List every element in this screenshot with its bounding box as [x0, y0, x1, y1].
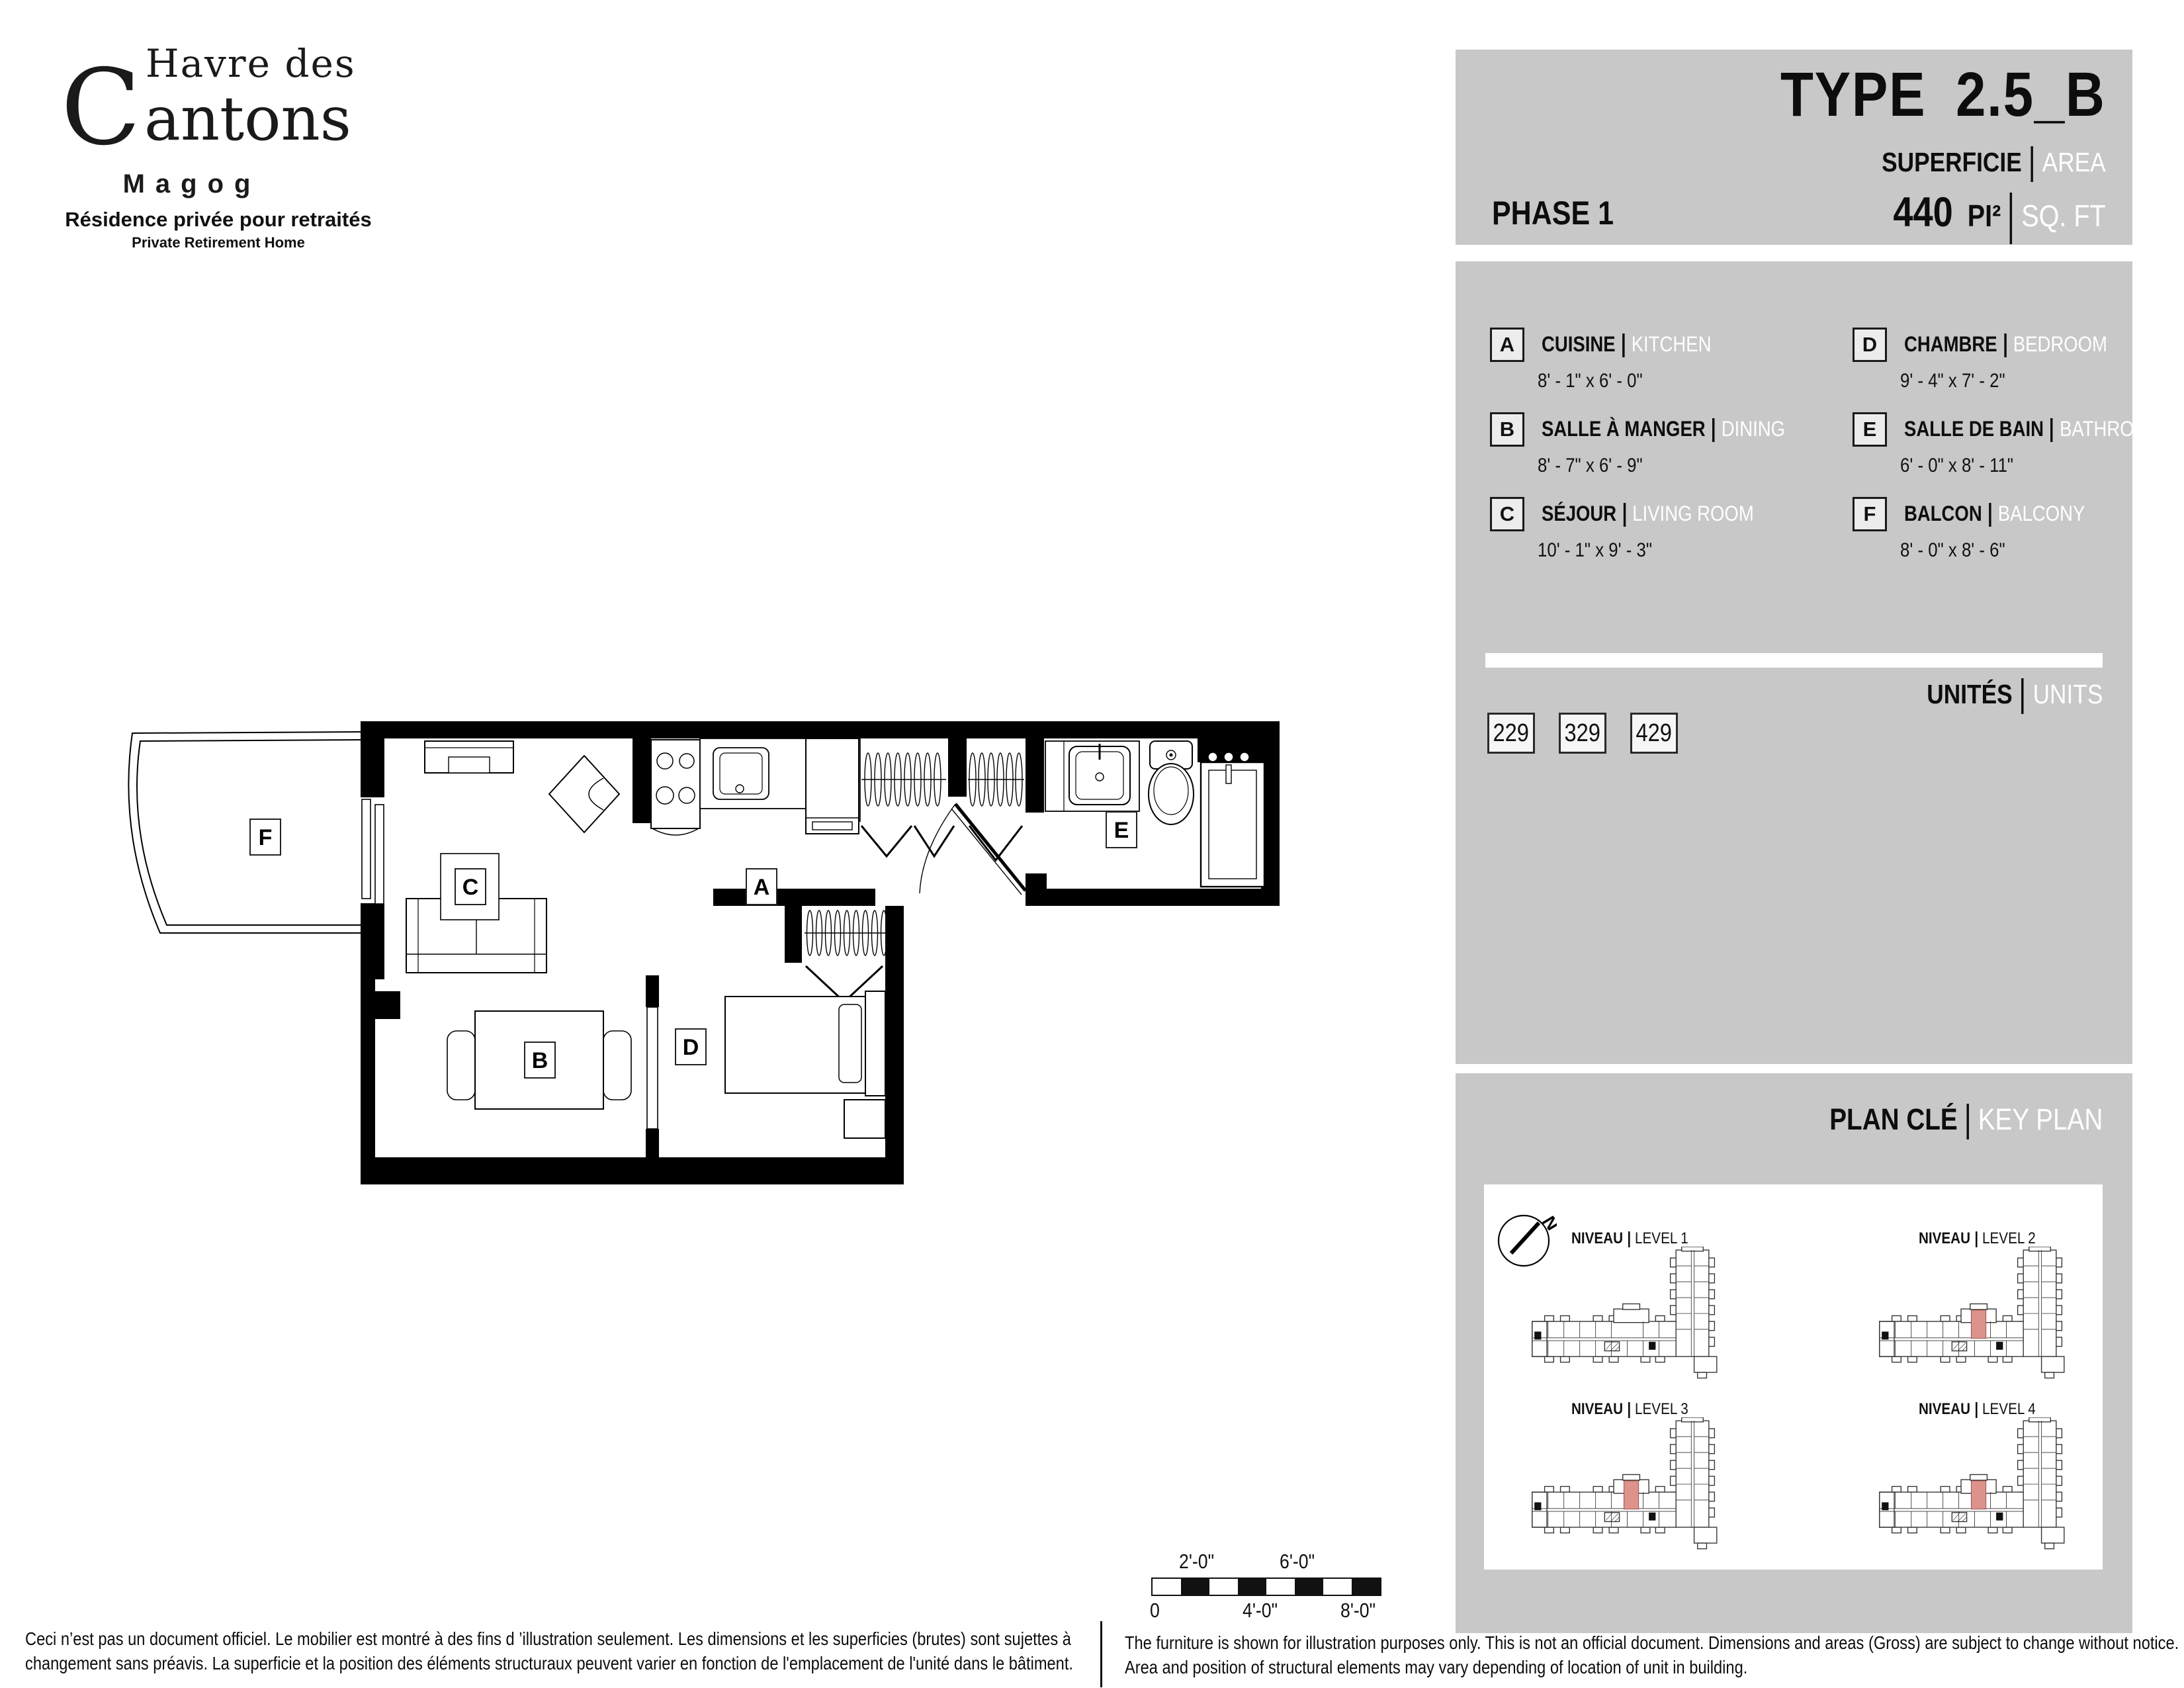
- balcony-sliding-door: [362, 799, 384, 904]
- legend-code-e: E: [1853, 412, 1887, 447]
- room-label-b: B: [532, 1048, 548, 1073]
- level-number: LEVEL 4: [1982, 1400, 2036, 1418]
- lounge-chair: [549, 756, 619, 832]
- logo-line-top: Havre des: [146, 41, 356, 86]
- scale-label-0: 0: [1150, 1599, 1160, 1622]
- disclaimer-english: The furniture is shown for illustration …: [1125, 1630, 2130, 1679]
- legend-name-en: KITCHEN: [1632, 332, 1712, 356]
- legend-dims: 8' - 1" x 6' - 0": [1538, 370, 1643, 392]
- nightstand: [844, 1100, 885, 1138]
- tv-console: [425, 741, 513, 773]
- units-separator: [1485, 653, 2103, 668]
- area-unit-fr: PI²: [1968, 199, 2001, 233]
- keyplan-building-level3: [1510, 1417, 1749, 1559]
- scale-label-6ft: 6'-0": [1280, 1550, 1315, 1574]
- niveau-label: NIVEAU: [1919, 1400, 1970, 1418]
- bathroom-vanity: [1045, 741, 1139, 811]
- brand-logo: Havre des C antons Magog Résidence privé…: [46, 32, 390, 250]
- legend-item-living: C SÉJOURLIVING ROOM 10' - 1" x 9' - 3": [1490, 497, 1860, 562]
- legend-name-en: LIVING ROOM: [1632, 502, 1753, 525]
- room-label-a: A: [754, 875, 770, 900]
- niveau-label: NIVEAU: [1571, 1400, 1623, 1418]
- legend-name-en: DINING: [1722, 417, 1785, 441]
- level-number: LEVEL 3: [1635, 1400, 1688, 1418]
- closet-1: [860, 738, 954, 856]
- niveau-label: NIVEAU: [1919, 1229, 1970, 1247]
- logo-big-initial: C: [61, 56, 141, 160]
- disclaimer-fr-line2: changement sans préavis. La superficie e…: [25, 1651, 1073, 1675]
- room-label-f: F: [259, 825, 273, 850]
- legend-dims: 9' - 4" x 7' - 2": [1900, 370, 2005, 392]
- logo-tagline-en: Private Retirement Home: [46, 234, 390, 251]
- toilet: [1149, 741, 1194, 824]
- kitchen-sink: [700, 738, 806, 809]
- keyplan-level-3: NIVEAULEVEL 3: [1510, 1394, 1749, 1559]
- keyplan-title-fr: PLAN CLÉ: [1829, 1102, 1958, 1136]
- legend-item-dining: B SALLE À MANGERDINING 8' - 7" x 6' - 9": [1490, 412, 1860, 477]
- balcony-outline: [128, 732, 363, 933]
- keyplan-canvas: N NIVEAULEVEL 1 NIVEAULEVEL 2 NIVEAULEVE…: [1484, 1184, 2103, 1570]
- legend-dims: 8' - 0" x 8' - 6": [1900, 539, 2005, 562]
- legend-name-en: BEDROOM: [2013, 332, 2107, 356]
- keyplan-title-en: KEY PLAN: [1978, 1102, 2103, 1136]
- legend-panel: A CUISINEKITCHEN 8' - 1" x 6' - 0" B SAL…: [1456, 261, 2132, 1064]
- disclaimer-en-line2: Area and position of structural elements…: [1125, 1655, 1747, 1679]
- highlighted-unit: [1971, 1481, 1986, 1509]
- keyplan-building-level1: [1510, 1247, 1749, 1388]
- legend-name-en: BATHROOM: [2060, 417, 2163, 441]
- stove: [651, 740, 700, 835]
- legend-name-fr: CUISINE: [1542, 332, 1616, 356]
- bed: [725, 991, 885, 1096]
- legend-dims: 8' - 7" x 6' - 9": [1538, 455, 1643, 477]
- room-label-d: D: [683, 1035, 699, 1060]
- legend-item-bedroom: D CHAMBREBEDROOM 9' - 4" x 7' - 2": [1853, 328, 2184, 392]
- legend-dims: 6' - 0" x 8' - 11": [1900, 455, 2013, 477]
- legend-code-c: C: [1490, 497, 1524, 531]
- keyplan-panel: PLAN CLÉKEY PLAN: [1456, 1073, 2132, 1633]
- logo-line-main: antons: [144, 89, 351, 150]
- keyplan-level-4: NIVEAULEVEL 4: [1858, 1394, 2096, 1559]
- unit-number-229: 229: [1487, 713, 1535, 754]
- bedroom-closet: [805, 911, 887, 1002]
- disclaimer-french: Ceci n’est pas un document officiel. Le …: [25, 1626, 1097, 1675]
- area-value: 440: [1894, 189, 1953, 236]
- header-panel: TYPE2.5_B SUPERFICIEAREA 440 PI²SQ. FT P…: [1456, 50, 2132, 245]
- disclaimer-fr-line1: Ceci n’est pas un document officiel. Le …: [25, 1626, 1071, 1651]
- unit-number-429: 429: [1630, 713, 1678, 754]
- legend-name-fr: SÉJOUR: [1542, 502, 1616, 525]
- scale-bar-segments: [1151, 1577, 1381, 1596]
- room-label-e: E: [1114, 818, 1129, 843]
- logo-tagline-fr: Résidence privée pour retraités: [46, 208, 390, 232]
- logo-city: Magog: [46, 169, 337, 199]
- unit-floorplan-drawing: F C A B D E: [99, 695, 1356, 1198]
- legend-item-balcony: F BALCONBALCONY 8' - 0" x 8' - 6": [1853, 497, 2184, 562]
- legend-code-a: A: [1490, 328, 1524, 362]
- legend-code-f: F: [1853, 497, 1887, 531]
- highlighted-unit: [1971, 1310, 1986, 1339]
- unit-number-list: 229 329 429: [1487, 713, 1678, 754]
- units-label-fr: UNITÉS: [1927, 679, 2012, 709]
- legend-item-kitchen: A CUISINEKITCHEN 8' - 1" x 6' - 0": [1490, 328, 1860, 392]
- keyplan-level-2: NIVEAULEVEL 2: [1858, 1223, 2096, 1388]
- units-label-en: UNITS: [2032, 679, 2103, 709]
- legend-name-en: BALCONY: [1998, 502, 2085, 525]
- bedroom-pocket-door: [647, 1007, 658, 1129]
- level-number: LEVEL 2: [1982, 1229, 2036, 1247]
- area-label-fr: SUPERFICIE: [1882, 147, 2022, 177]
- keyplan-level-1: NIVEAULEVEL 1: [1510, 1223, 1749, 1388]
- floorplan-sheet: Havre des C antons Magog Résidence privé…: [0, 0, 2184, 1688]
- level-number: LEVEL 1: [1635, 1229, 1688, 1247]
- closet-2: [968, 753, 1024, 860]
- type-code: 2.5_B: [1956, 60, 2106, 130]
- shower: [1201, 752, 1264, 887]
- legend-code-d: D: [1853, 328, 1887, 362]
- legend-item-bathroom: E SALLE DE BAINBATHROOM 6' - 0" x 8' - 1…: [1853, 412, 2184, 477]
- niveau-label: NIVEAU: [1571, 1229, 1623, 1247]
- phase-label: PHASE 1: [1492, 194, 1614, 232]
- keyplan-building-level2: [1858, 1247, 2096, 1388]
- scale-bar: 2'-0" 6'-0" 0 4'-0" 8'-0": [1150, 1550, 1388, 1626]
- scale-label-8ft: 8'-0": [1340, 1599, 1376, 1622]
- room-label-c: C: [462, 875, 479, 900]
- legend-code-b: B: [1490, 412, 1524, 447]
- highlighted-unit: [1624, 1481, 1638, 1509]
- footer-divider: [1100, 1621, 1102, 1687]
- legend-name-fr: CHAMBRE: [1904, 332, 1997, 356]
- type-prefix: TYPE: [1780, 60, 1926, 130]
- scale-label-2ft: 2'-0": [1179, 1550, 1214, 1574]
- disclaimer-en-line1: The furniture is shown for illustration …: [1125, 1630, 2179, 1655]
- entry-door: [920, 804, 1026, 895]
- legend-name-fr: SALLE À MANGER: [1542, 417, 1706, 441]
- unit-number-329: 329: [1559, 713, 1606, 754]
- refrigerator: [806, 738, 859, 834]
- area-label-en: AREA: [2042, 147, 2106, 177]
- keyplan-building-level4: [1858, 1417, 2096, 1559]
- area-unit-en: SQ. FT: [2022, 199, 2106, 233]
- legend-name-fr: SALLE DE BAIN: [1904, 417, 2044, 441]
- legend-dims: 10' - 1" x 9' - 3": [1538, 539, 1652, 562]
- scale-label-4ft: 4'-0": [1243, 1599, 1278, 1622]
- legend-name-fr: BALCON: [1904, 502, 1982, 525]
